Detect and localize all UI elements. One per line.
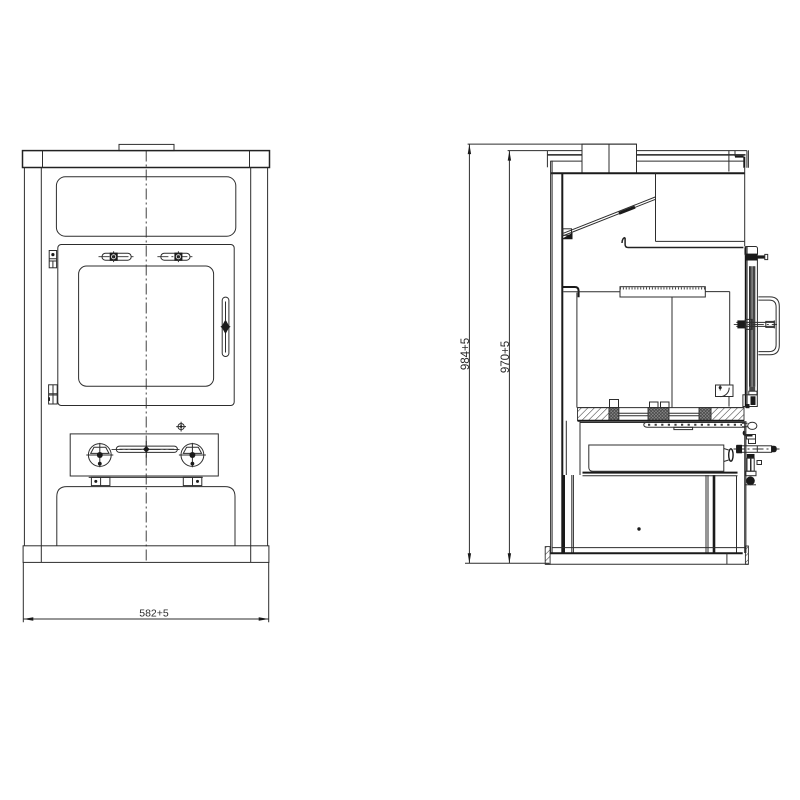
svg-text:582+5: 582+5 — [139, 608, 169, 620]
svg-text:984+5: 984+5 — [460, 338, 472, 370]
svg-text:970+5: 970+5 — [500, 341, 512, 373]
